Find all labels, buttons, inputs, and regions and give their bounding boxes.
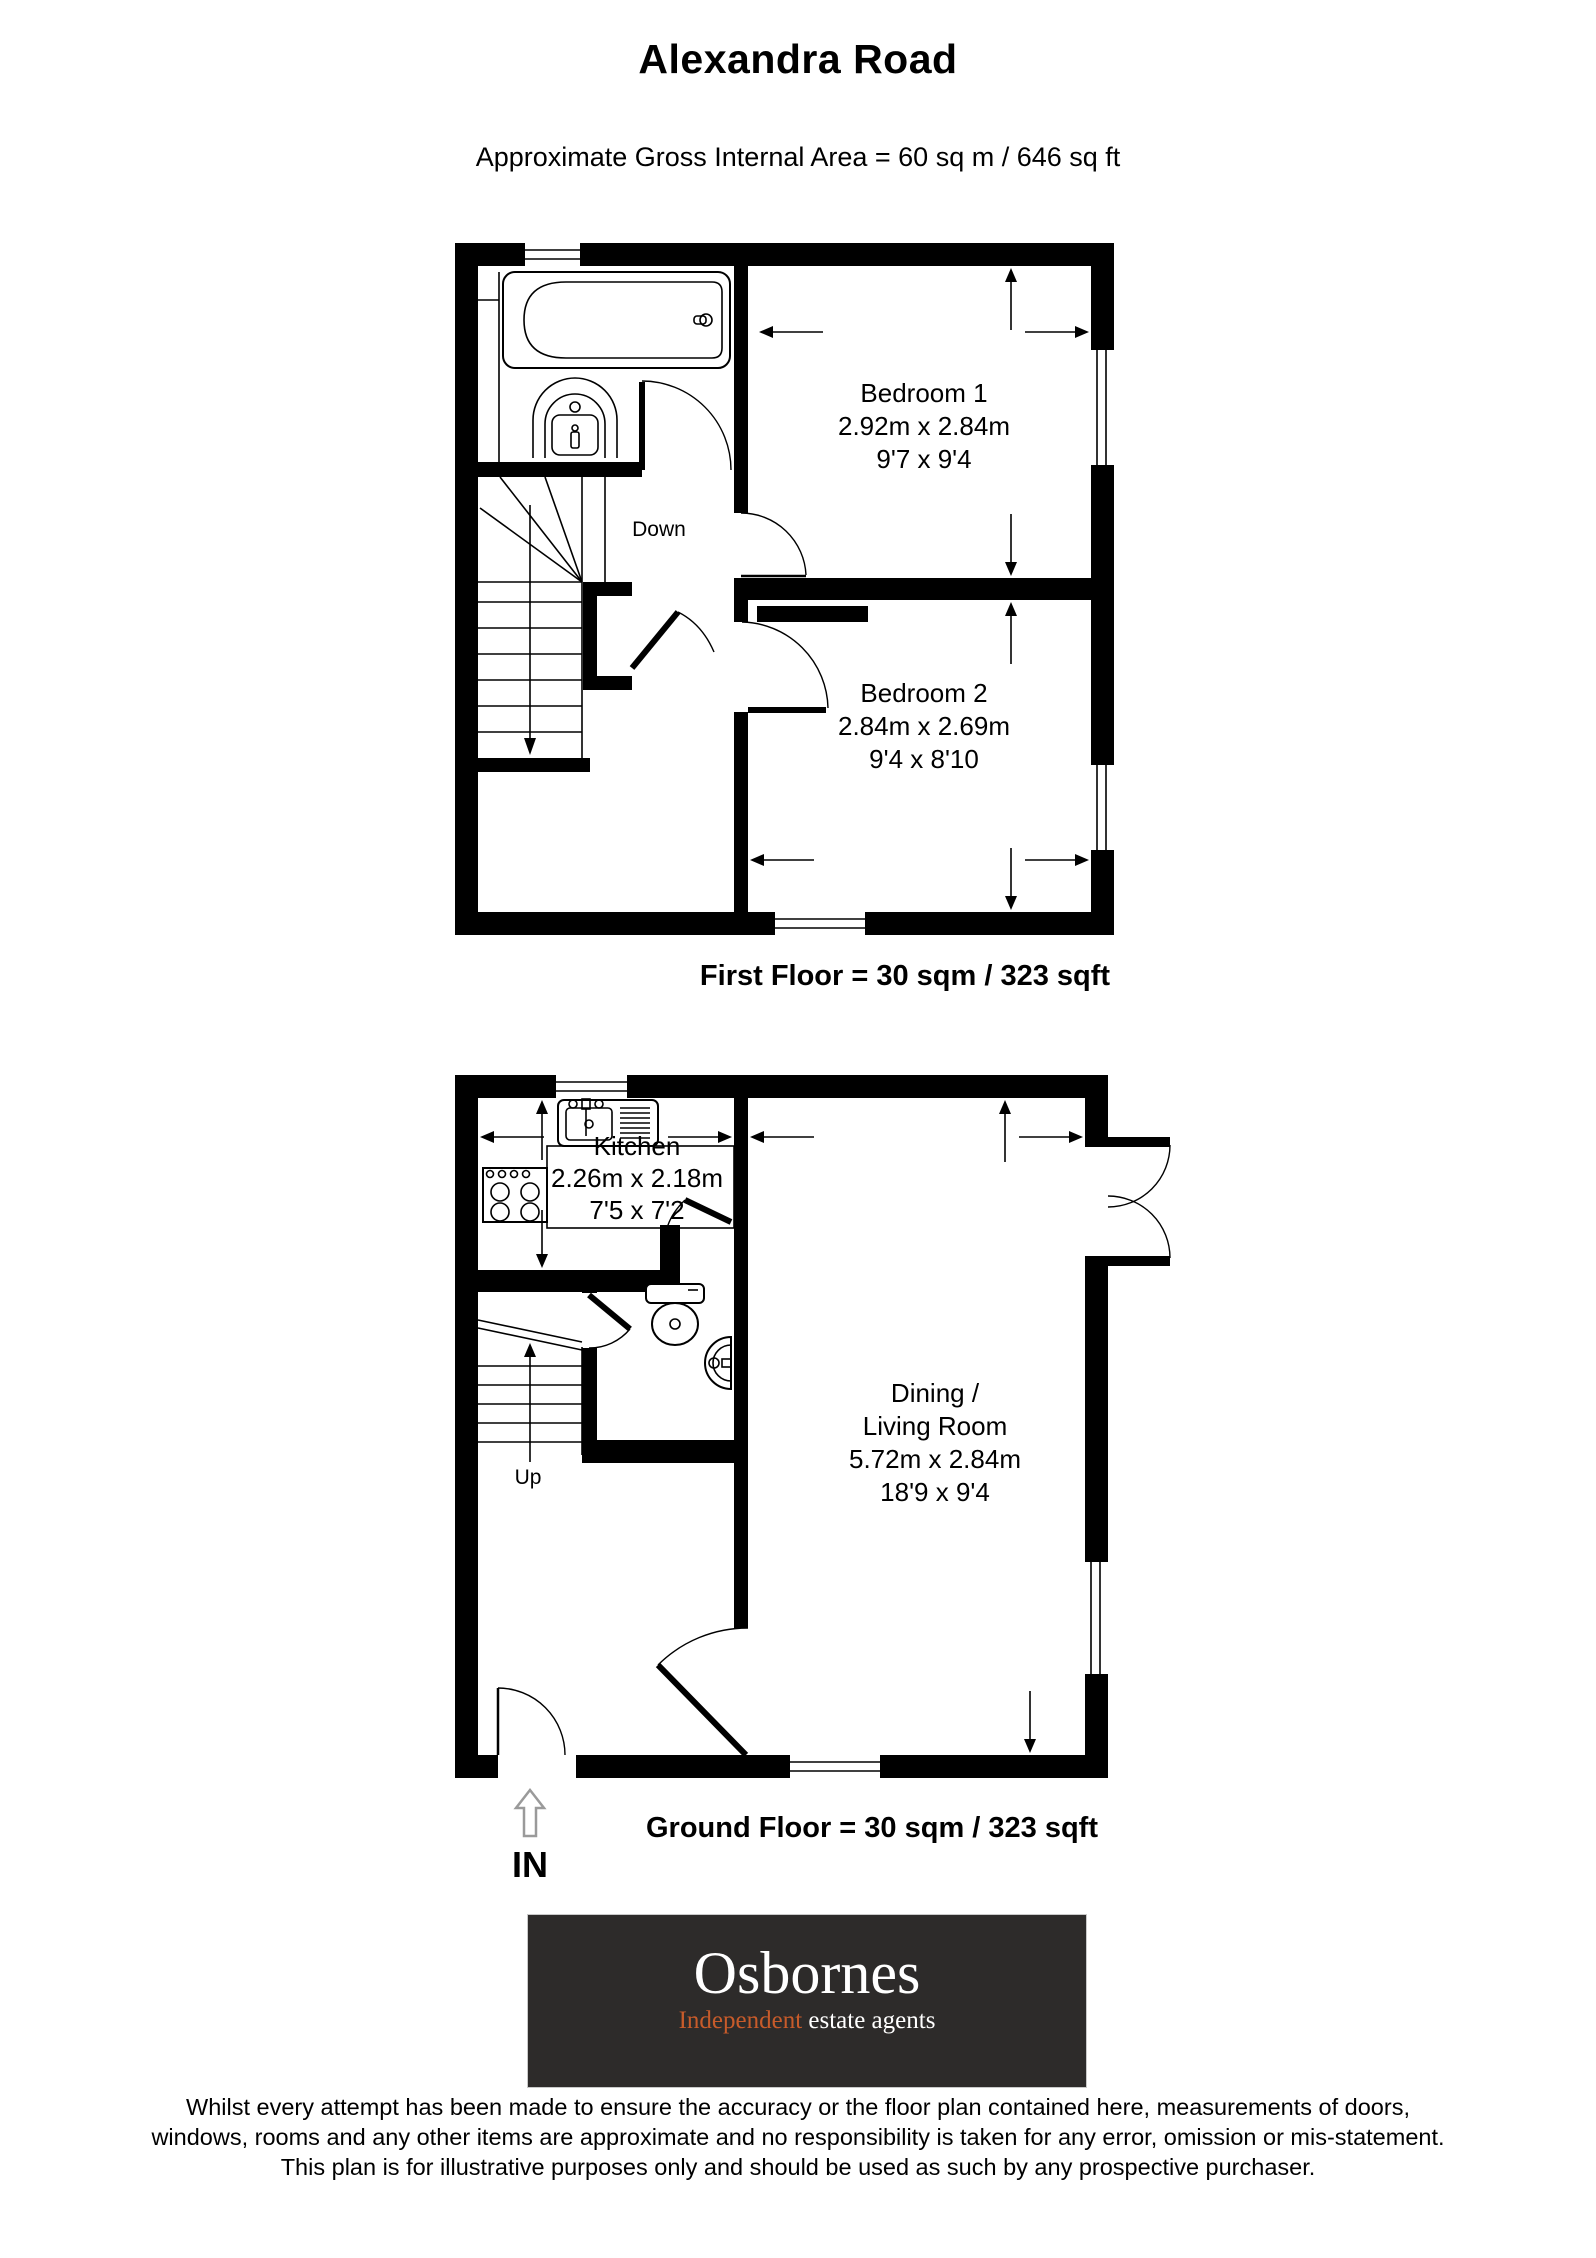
bedroom2-imperial: 9'4 x 8'10 (869, 744, 979, 774)
bathroom-window (525, 243, 580, 266)
entrance-opening (498, 1755, 576, 1778)
bedroom1-name: Bedroom 1 (860, 378, 987, 408)
bedroom1-metric: 2.92m x 2.84m (838, 411, 1010, 441)
kitchen-metric: 2.26m x 2.18m (551, 1163, 723, 1193)
disclaimer-text: Whilst every attempt has been made to en… (0, 2092, 1596, 2182)
living-room-name-line1: Dining / (891, 1378, 980, 1408)
bedroom1-window (1091, 350, 1114, 465)
ground-floor-caption: Ground Floor = 30 sqm / 323 sqft (646, 1812, 1098, 1845)
disclaimer-line-2: windows, rooms and any other items are a… (0, 2122, 1596, 2152)
entrance-door (498, 1688, 565, 1755)
first-floor-plan: Down Bedroom 1 2.92m x 2.84m 9'7 x 9'4 B… (440, 230, 1140, 960)
first-floor-caption: First Floor = 30 sqm / 323 sqft (700, 960, 1110, 993)
bedroom1-imperial: 9'7 x 9'4 (876, 444, 971, 474)
kitchen-name: Kitchen (594, 1131, 681, 1161)
entrance-in-arrow-icon (516, 1790, 544, 1836)
living-room-side-window (1085, 1562, 1108, 1674)
kitchen-window (556, 1075, 627, 1098)
bathroom-basin (533, 378, 617, 458)
bedroom2-bottom-window (775, 912, 865, 935)
bedroom2-window (1091, 765, 1114, 850)
wc-basin (705, 1337, 731, 1389)
disclaimer-line-1: Whilst every attempt has been made to en… (0, 2092, 1596, 2122)
ground-floor-plan: Up Kitchen 2.26m x 2.18m 7'5 x 7'2 Dinin… (440, 1060, 1200, 1850)
living-room-metric: 5.72m x 2.84m (849, 1444, 1021, 1474)
logo-tagline: Independent estate agents (528, 2007, 1086, 2035)
french-doors (1085, 1137, 1170, 1266)
living-room-bottom-window (790, 1755, 880, 1778)
wc-toilet (646, 1284, 704, 1345)
kitchen-imperial: 7'5 x 7'2 (589, 1195, 684, 1225)
bathroom-shelf (478, 272, 499, 462)
logo-brand-name: Osbornes (528, 1941, 1086, 2005)
page-title: Alexandra Road (0, 36, 1596, 83)
bedroom2-door (742, 622, 828, 710)
bedroom2-name: Bedroom 2 (860, 678, 987, 708)
estate-agent-logo: Osbornes Independent estate agents (527, 1914, 1087, 2088)
page-subtitle: Approximate Gross Internal Area = 60 sq … (0, 142, 1596, 173)
stairs-up-label: Up (515, 1466, 542, 1489)
stairs-up (478, 1320, 582, 1462)
hall-door (658, 1628, 748, 1755)
wc-door (589, 1295, 630, 1348)
bathtub (503, 272, 730, 368)
kitchen-hob (483, 1168, 547, 1222)
entrance-in-label: IN (512, 1844, 548, 1886)
bedroom2-metric: 2.84m x 2.69m (838, 711, 1010, 741)
bedroom1-door (741, 513, 806, 576)
landing-closet (583, 582, 714, 690)
living-room-imperial: 18'9 x 9'4 (880, 1477, 990, 1507)
stairs-down-label: Down (632, 518, 686, 541)
living-room-name-line2: Living Room (863, 1411, 1008, 1441)
floorplan-page: { "page": { "title": "Alexandra Road", "… (0, 0, 1596, 2258)
disclaimer-line-3: This plan is for illustrative purposes o… (0, 2152, 1596, 2182)
logo-tagline-rest: estate agents (802, 2007, 935, 2034)
logo-tagline-highlight: Independent (679, 2007, 803, 2034)
bathroom-door (642, 381, 731, 470)
